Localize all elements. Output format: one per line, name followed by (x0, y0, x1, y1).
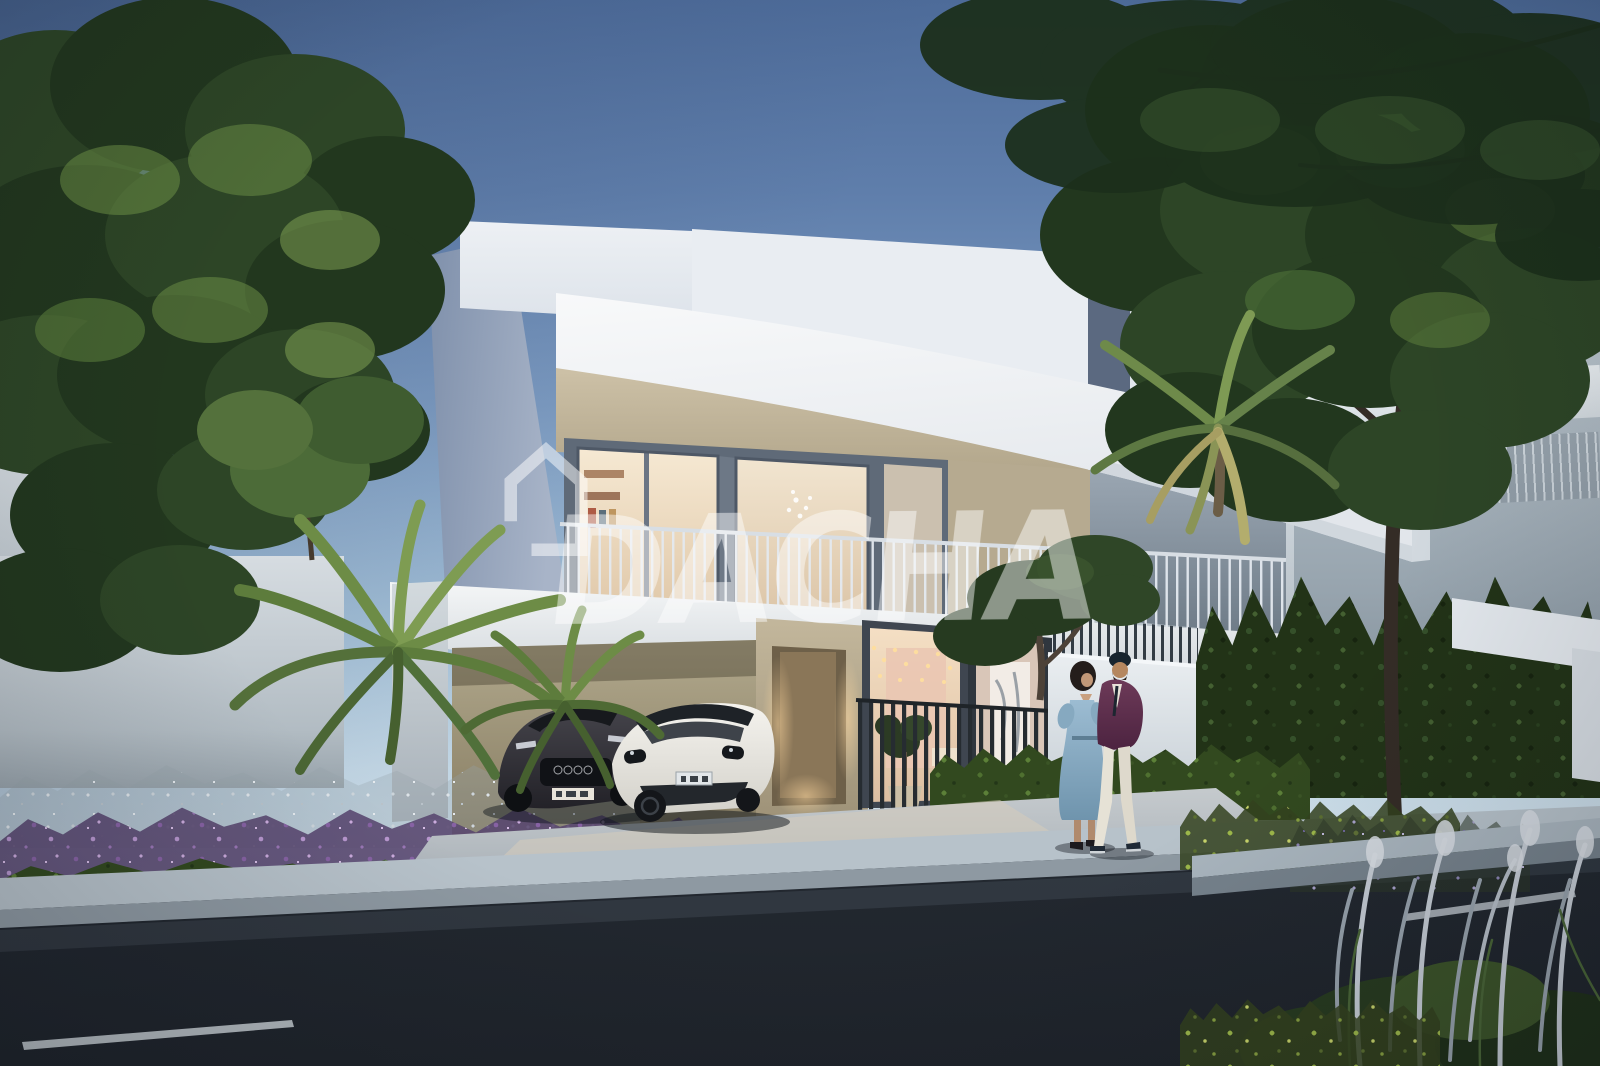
watermark-text: DACHA (539, 492, 1100, 648)
rendering-canvas: DACHA (0, 0, 1600, 1066)
overhanging-branches (0, 0, 1600, 300)
